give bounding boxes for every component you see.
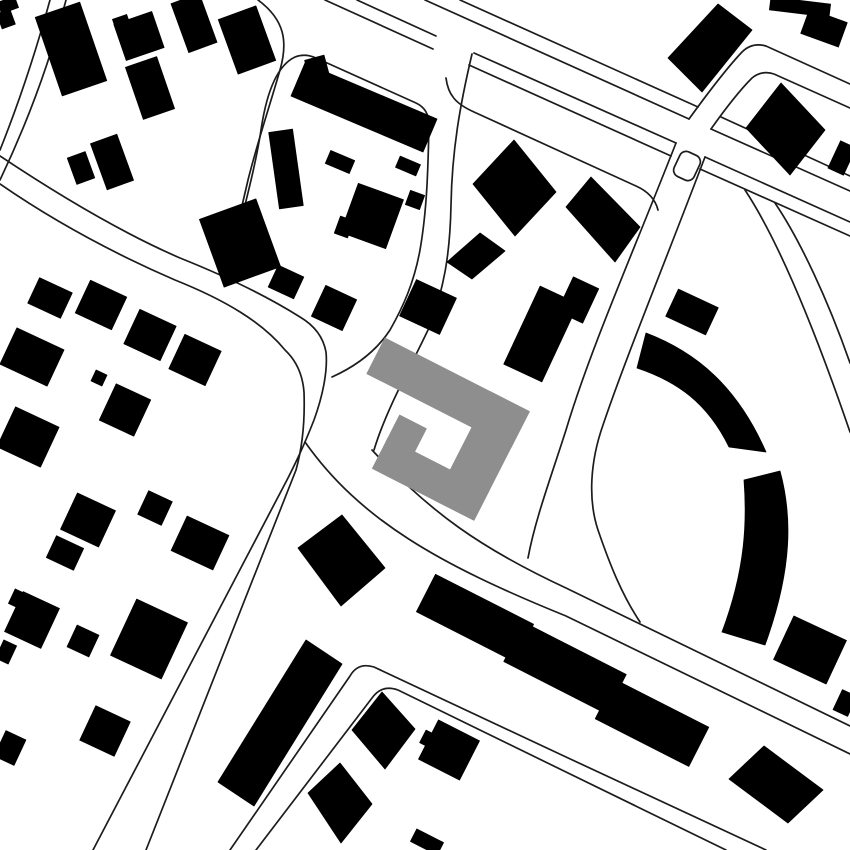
figure-ground-map[interactable]	[0, 0, 850, 850]
map-viewport[interactable]	[0, 0, 850, 850]
